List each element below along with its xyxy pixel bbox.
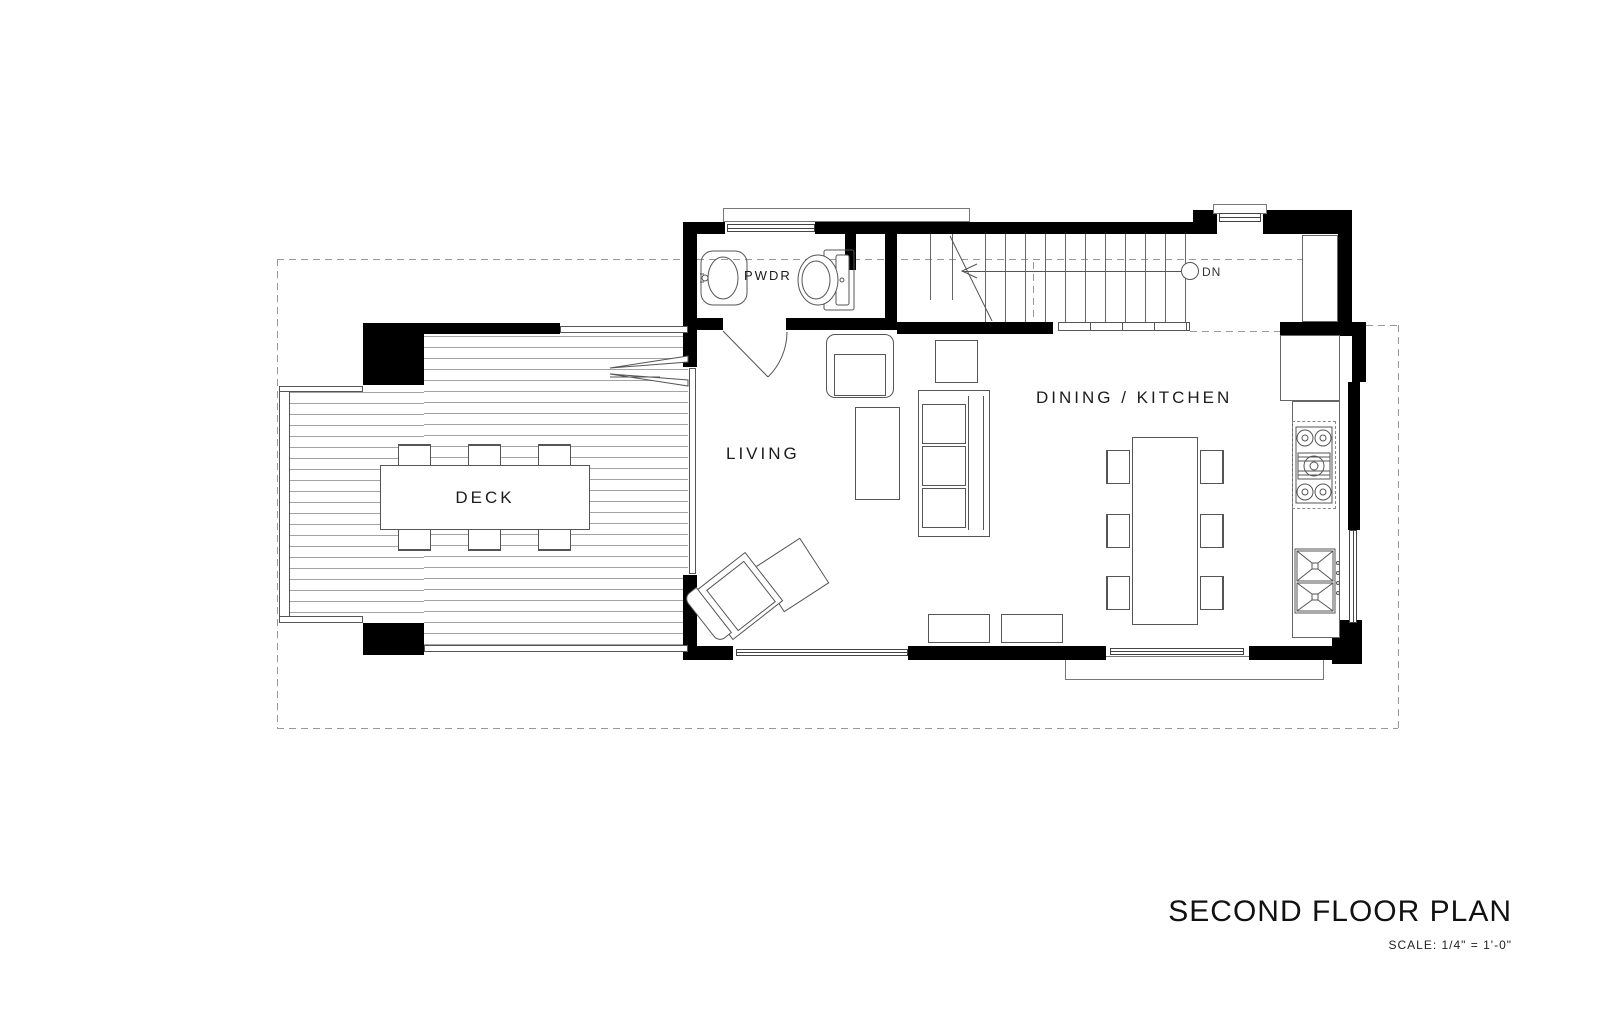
toilet (798, 250, 854, 310)
powder-room-label: PWDR (744, 268, 792, 283)
drawing-scale: SCALE: 1/4" = 1'-0" (1388, 938, 1512, 952)
bifold-door (610, 356, 688, 386)
floor-plan-canvas: DECK (0, 0, 1600, 1035)
fixture-overlay (0, 0, 1600, 1035)
dining-kitchen-label: DINING / KITCHEN (1036, 388, 1232, 408)
stove (1296, 427, 1332, 503)
stair-direction-label: DN (1202, 265, 1221, 279)
bathroom-sink (700, 251, 747, 305)
drawing-title: SECOND FLOOR PLAN (1168, 895, 1512, 929)
living-room-label: LIVING (726, 444, 800, 464)
door-swing (723, 331, 787, 377)
stair-break-line (950, 236, 992, 321)
kitchen-sink (1295, 549, 1340, 613)
